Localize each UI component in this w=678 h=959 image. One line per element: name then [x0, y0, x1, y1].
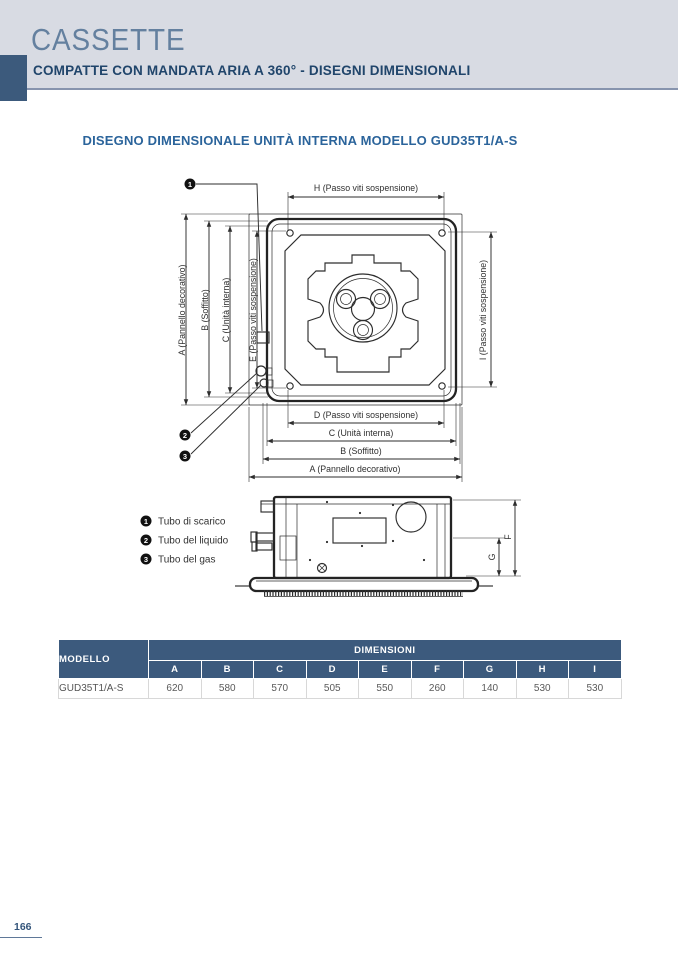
value-i: 530	[569, 679, 622, 699]
col-header-e: E	[359, 661, 412, 679]
value-h: 530	[516, 679, 569, 699]
callout-2: 2	[183, 431, 187, 440]
table-header-modello: MODELLO	[59, 640, 149, 679]
value-c: 570	[254, 679, 307, 699]
table-row: GUD35T1/A-S 620 580 570 505 550 260 140 …	[59, 679, 622, 699]
col-header-i: I	[569, 661, 622, 679]
col-header-f: F	[411, 661, 464, 679]
dim-label-a-left: A (Pannello decorativo)	[177, 264, 187, 355]
value-g: 140	[464, 679, 517, 699]
dim-label-b-bottom: B (Soffitto)	[340, 446, 381, 456]
legend-num-3: 3	[144, 555, 148, 564]
dim-label-i: I (Passo viti sospensione)	[478, 260, 488, 360]
value-b: 580	[201, 679, 254, 699]
col-header-a: A	[149, 661, 202, 679]
col-header-d: D	[306, 661, 359, 679]
col-header-b: B	[201, 661, 254, 679]
table-header-dimensioni: DIMENSIONI	[149, 640, 622, 661]
dim-label-c-bottom: C (Unità interna)	[329, 428, 394, 438]
page-subtitle: COMPATTE CON MANDATA ARIA A 360° - DISEG…	[33, 63, 470, 78]
top-view	[249, 214, 462, 405]
section-title: DISEGNO DIMENSIONALE UNITÀ INTERNA MODEL…	[40, 133, 560, 148]
legend-label-3: Tubo del gas	[158, 555, 215, 566]
callout-1: 1	[188, 180, 192, 189]
legend-label-2: Tubo del liquido	[158, 536, 229, 547]
value-a: 620	[149, 679, 202, 699]
model-name: GUD35T1/A-S	[59, 679, 149, 699]
col-header-c: C	[254, 661, 307, 679]
dim-label-d-bottom: D (Passo viti sospensione)	[314, 410, 418, 420]
footer-divider	[0, 937, 42, 938]
page-title: CASSETTE	[31, 22, 185, 58]
side-view	[235, 497, 493, 597]
callout-3: 3	[183, 452, 187, 461]
legend-num-1: 1	[144, 517, 148, 526]
dim-label-c-left: C (Unità interna)	[221, 278, 231, 343]
col-header-h: H	[516, 661, 569, 679]
accent-square	[0, 55, 27, 101]
legend-num-2: 2	[144, 536, 148, 545]
page-number: 166	[14, 921, 32, 933]
dimensional-drawing: H (Passo viti sospensione) A (Pannello d…	[135, 172, 540, 605]
pipe-legend: 1 Tubo di scarico 2 Tubo del liquido 3 T…	[141, 516, 229, 566]
value-d: 505	[306, 679, 359, 699]
dim-label-b-left: B (Soffitto)	[200, 289, 210, 330]
col-header-g: G	[464, 661, 517, 679]
value-e: 550	[359, 679, 412, 699]
dimensions-table: MODELLO DIMENSIONI A B C D E F G H I GUD…	[58, 639, 622, 699]
legend-label-1: Tubo di scarico	[158, 517, 226, 528]
dim-label-h: H (Passo viti sospensione)	[314, 183, 418, 193]
value-f: 260	[411, 679, 464, 699]
dim-label-a-bottom: A (Pannello decorativo)	[310, 464, 401, 474]
dim-label-e-left: E (Passo viti sospensione)	[248, 258, 258, 362]
dim-label-g: G	[487, 553, 497, 560]
dimensions-top-view: H (Passo viti sospensione) A (Pannello d…	[177, 183, 497, 482]
dimensions-side-view: F G	[453, 500, 521, 576]
dim-label-f: F	[503, 534, 513, 540]
